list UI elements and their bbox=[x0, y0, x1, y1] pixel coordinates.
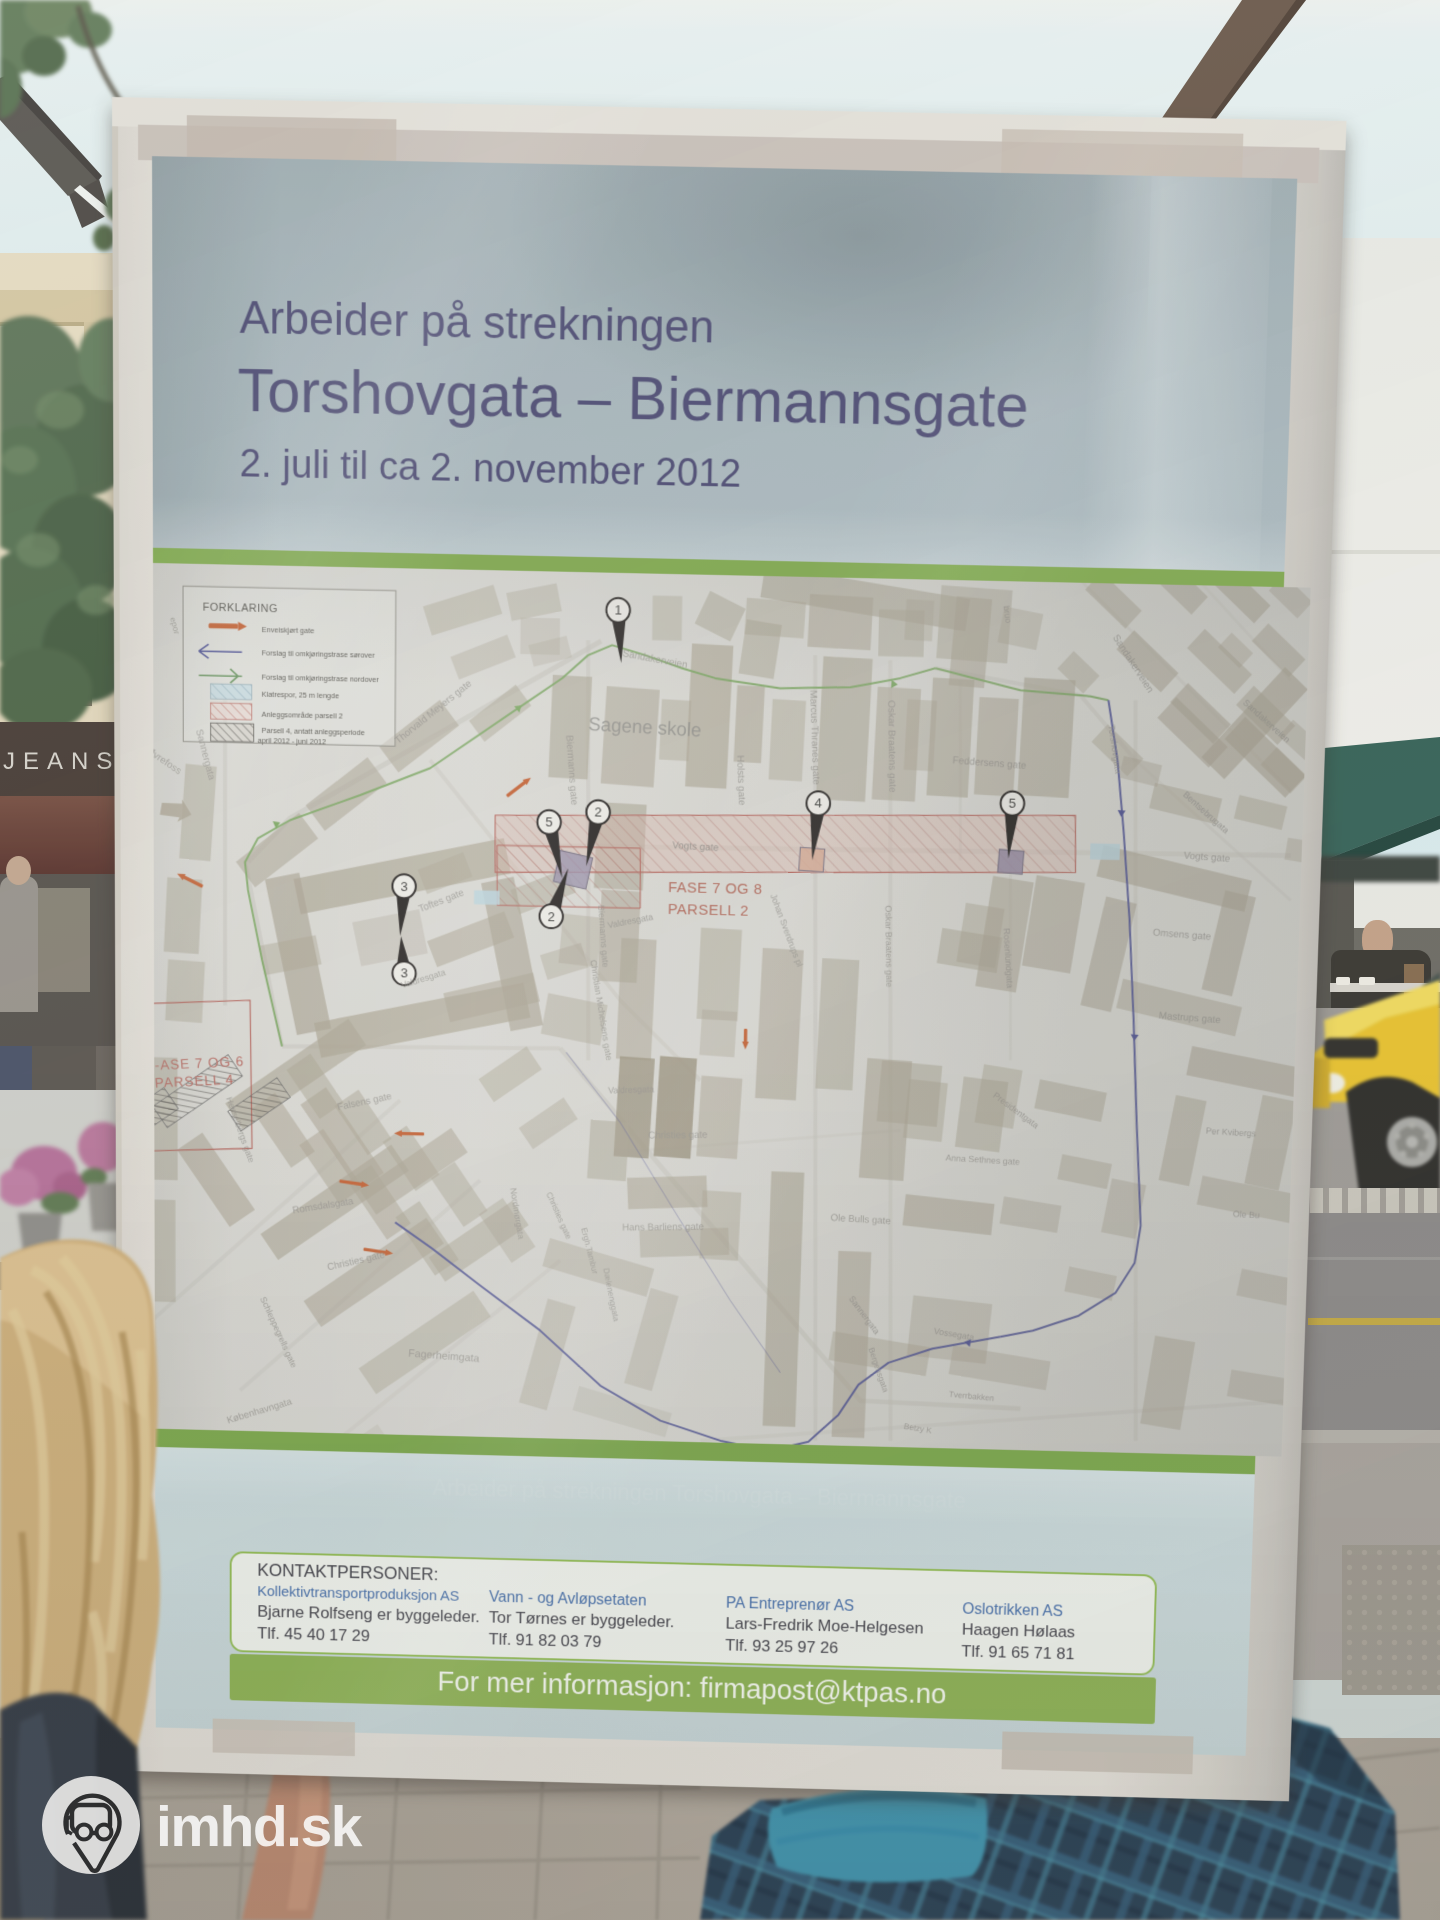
svg-text:imhd.sk: imhd.sk bbox=[156, 1795, 363, 1859]
